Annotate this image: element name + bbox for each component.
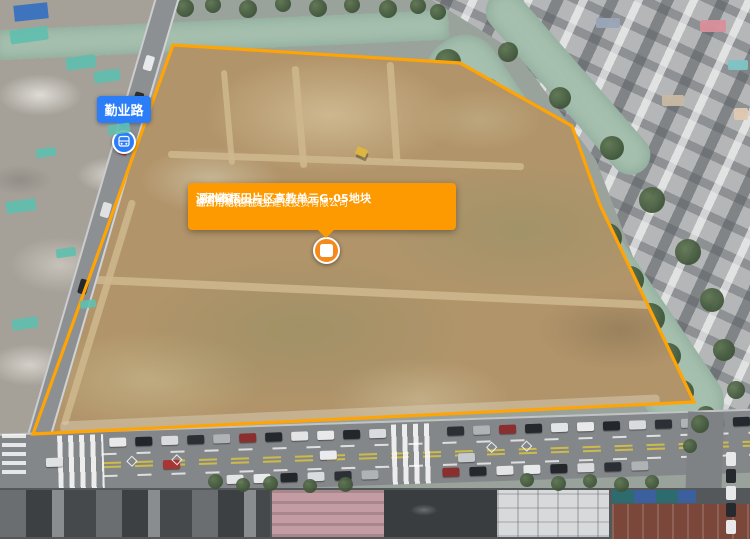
parked-car [631, 461, 648, 471]
tree [675, 239, 701, 265]
street-tree [645, 475, 659, 489]
parked-car [629, 420, 646, 430]
moving-car [46, 458, 63, 468]
village-roof [596, 18, 620, 28]
parked-car [361, 470, 378, 480]
parked-car [525, 424, 542, 434]
parked-car [726, 486, 736, 500]
road-label-qinye[interactable]: 勤业路 [97, 96, 151, 123]
street-tree [614, 477, 629, 492]
parked-car [577, 422, 594, 432]
tree [205, 0, 221, 13]
parked-car [726, 452, 736, 466]
tree [498, 42, 518, 62]
parked-car [280, 473, 297, 483]
street-tree [208, 474, 223, 489]
tree [176, 0, 194, 17]
parked-car [499, 424, 516, 434]
parked-car [551, 423, 568, 433]
parked-car [109, 437, 126, 447]
street-tree [683, 439, 697, 453]
village-roof [700, 20, 726, 32]
building-roof-pink [272, 490, 384, 537]
tree [549, 87, 571, 109]
parked-car [603, 421, 620, 431]
buildings-bottom [0, 488, 750, 539]
parked-car [733, 417, 750, 427]
parked-car [726, 469, 736, 483]
tree [713, 339, 735, 361]
parked-car [604, 462, 621, 472]
building-roof [0, 490, 270, 537]
street-tree [520, 473, 534, 487]
tree [379, 0, 397, 18]
map-canvas[interactable]: 温州市梧田片区高教单元G-05地块 (已成交) (招拍挂) 综合用地(含住宅) … [0, 0, 750, 539]
parked-car [213, 434, 230, 444]
tree [430, 4, 446, 20]
parcel-tooltip[interactable]: 温州市梧田片区高教单元G-05地块 (已成交) (招拍挂) 综合用地(含住宅) … [188, 183, 456, 230]
parked-car [135, 437, 152, 447]
crosswalk [57, 434, 105, 495]
parked-car [291, 431, 308, 441]
parked-car [187, 435, 204, 445]
parcel-grid-icon [320, 244, 333, 257]
tree [639, 187, 665, 213]
parked-car [577, 463, 594, 473]
tree [727, 381, 745, 399]
crosswalk [2, 432, 26, 474]
parked-car [726, 503, 736, 517]
parked-car [161, 436, 178, 446]
tree [239, 0, 257, 18]
building-roof [384, 490, 499, 537]
street-tree [338, 477, 353, 492]
moving-car [320, 450, 337, 460]
street-tree [691, 415, 709, 433]
bus-icon [117, 135, 131, 149]
parked-car [265, 432, 282, 442]
street-tree [236, 478, 250, 492]
parked-car [317, 431, 334, 441]
road-label-text: 勤业路 [104, 100, 143, 119]
parked-car [550, 464, 567, 474]
crosswalk [391, 423, 433, 484]
parked-car [343, 430, 360, 440]
parked-car [142, 55, 155, 72]
building-roof-white [497, 490, 609, 537]
parked-car [469, 466, 486, 476]
dirt-track [221, 70, 235, 165]
excavator [355, 146, 368, 158]
street-tree [263, 476, 278, 491]
parked-car [496, 466, 513, 476]
village-roof [662, 95, 684, 106]
street-tree [303, 479, 317, 493]
tree [275, 0, 291, 12]
parcel-marker[interactable] [313, 237, 340, 264]
parked-car [473, 425, 490, 435]
tree [344, 0, 360, 13]
parked-car [447, 426, 464, 436]
parked-car [726, 520, 736, 534]
dirt-track [387, 62, 401, 162]
parcel-owner: 温州市新龙商贸业建设投资有限公司 [196, 195, 348, 209]
parked-car [239, 433, 256, 443]
dirt-track [40, 273, 685, 310]
parked-car [369, 429, 386, 439]
parked-car [442, 467, 459, 477]
tree [700, 288, 724, 312]
street-tree [551, 476, 566, 491]
moving-car [458, 453, 475, 463]
container-roofs [612, 490, 696, 503]
parked-car [655, 419, 672, 429]
village-roof [734, 108, 748, 120]
tooltip-pointer [318, 230, 334, 238]
tree [600, 136, 624, 160]
dirt-track [292, 66, 308, 168]
village-roof [728, 60, 748, 70]
dirt-track [168, 151, 524, 170]
street-tree [583, 474, 597, 488]
